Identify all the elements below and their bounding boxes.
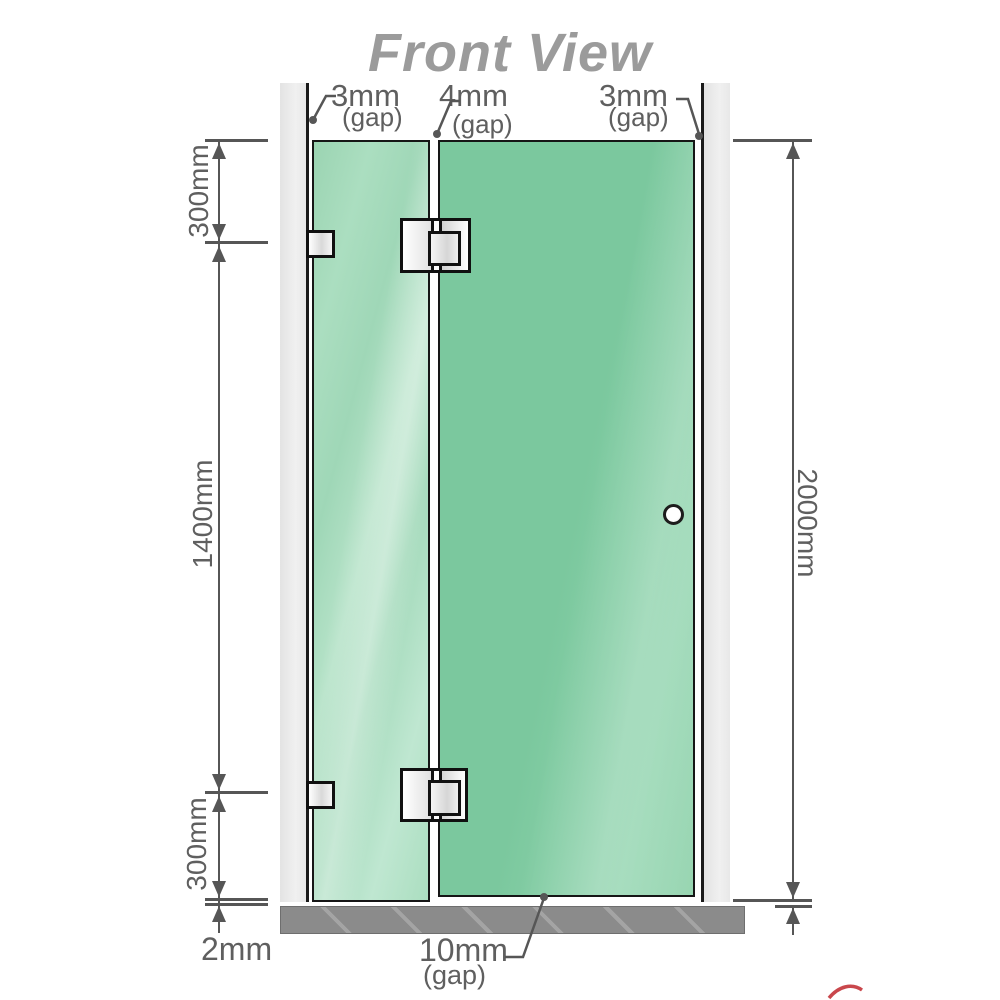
front-view-diagram: Front View (0, 0, 1000, 1000)
red-logo-swoosh (829, 986, 862, 998)
dimension-lines (0, 0, 1000, 1000)
